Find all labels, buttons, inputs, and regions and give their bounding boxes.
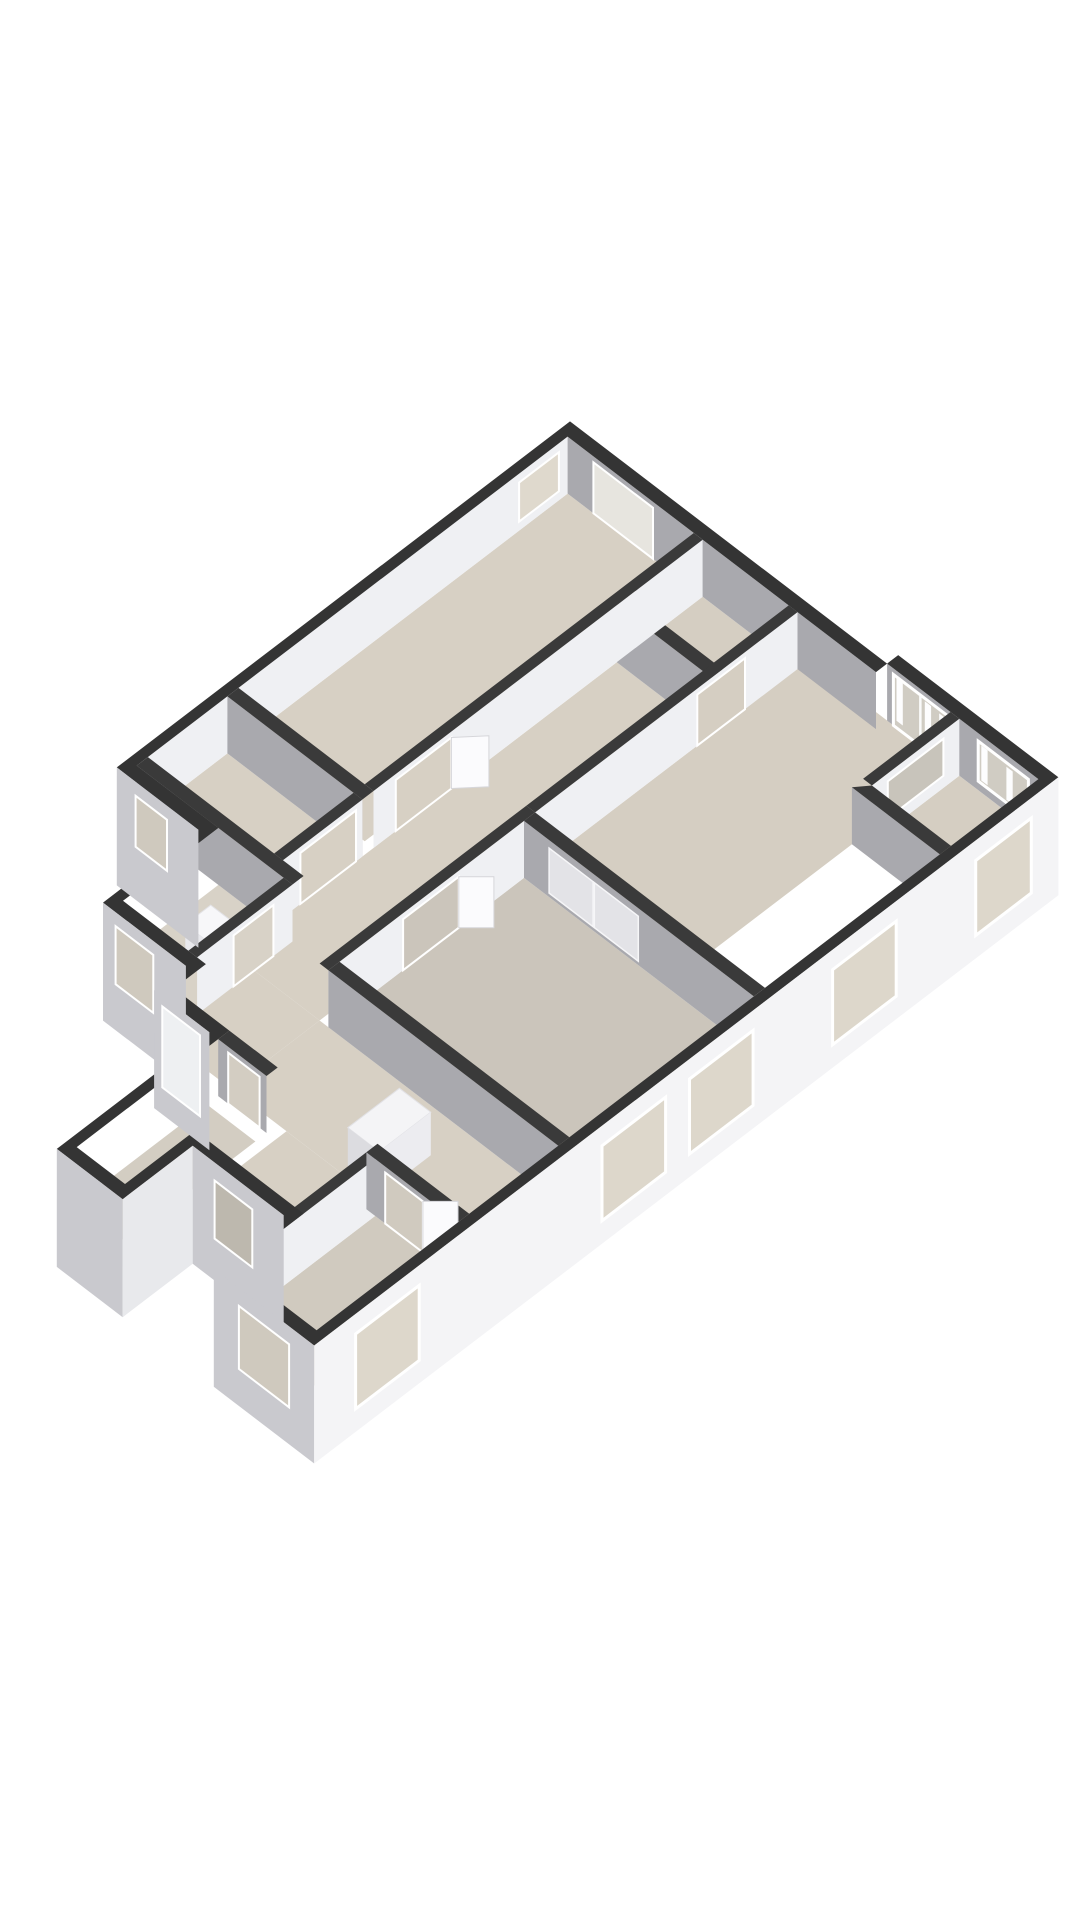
floorplan-3d-render: [0, 0, 1080, 1920]
curtain-icon: [981, 746, 987, 786]
floorplan-svg: [0, 0, 1080, 1920]
curtain-icon: [1006, 767, 1012, 805]
door-panel-bedroom2: [459, 877, 494, 928]
facade-storage-sw: [57, 1149, 123, 1317]
curtain-icon: [897, 678, 903, 726]
door-panel-living: [451, 736, 489, 789]
